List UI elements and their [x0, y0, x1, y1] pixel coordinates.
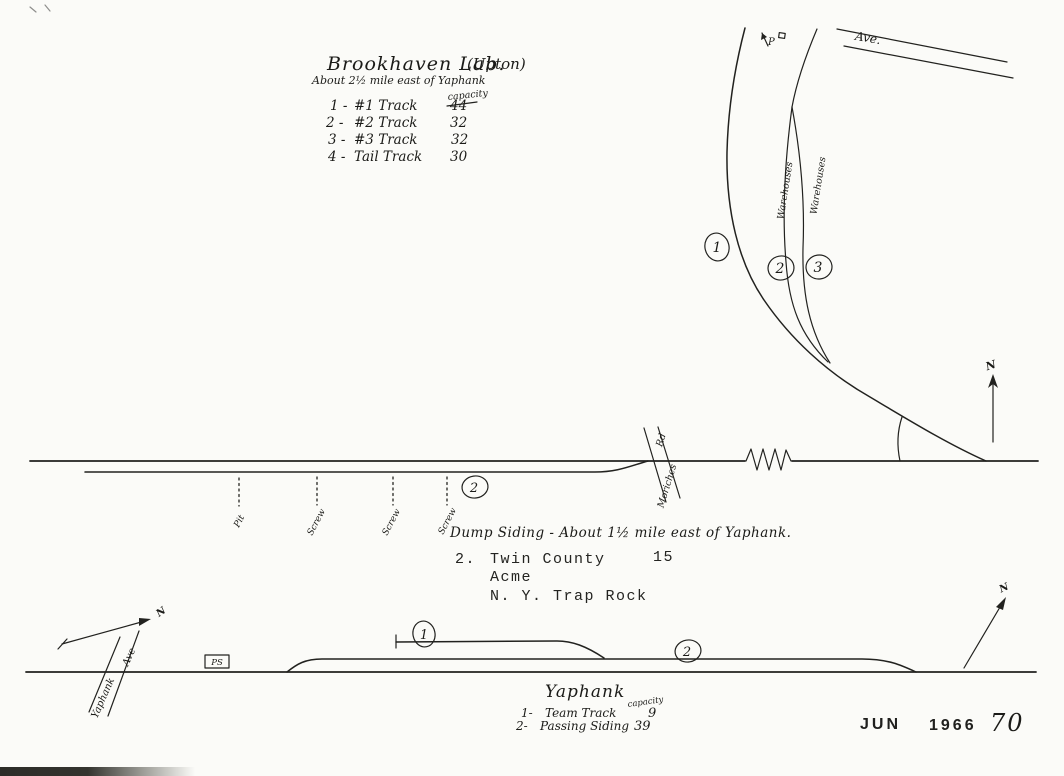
row-capacity: 39 — [634, 719, 651, 734]
north-arrow-br-head — [996, 597, 1006, 610]
brookhaven-track-row-3: 3 - #3 Track 32 — [328, 132, 468, 148]
upton-track-3-warehouse — [792, 107, 830, 363]
yaphank-capacity-header: capacity — [627, 695, 664, 710]
row-name: #1 Track — [354, 98, 417, 114]
row-capacity: 44 — [449, 98, 467, 114]
row-name: Team Track — [545, 706, 616, 720]
north-arrow-bl-head — [139, 618, 151, 626]
row-num: 3 - — [328, 132, 346, 148]
brookhaven-title-suffix: (Upton) — [467, 55, 526, 73]
yaphank-badge-2: 2 — [682, 645, 691, 660]
yaphank-ave-road-name: Yaphank — [90, 676, 118, 720]
row-capacity: 32 — [451, 132, 468, 148]
north-arrow-bl-shaft — [62, 621, 145, 644]
typed-note-company-1: Twin County — [490, 551, 606, 568]
warehouses-label-2: Warehouses — [809, 156, 829, 215]
dump-siding-badge: 2 — [469, 481, 478, 496]
yaphank-title: Yaphank — [545, 682, 625, 702]
moriches-road-suffix: Rd — [654, 432, 669, 449]
typed-note-index: 2. — [455, 551, 476, 568]
yaphank-ave-road-line-2 — [108, 631, 139, 716]
page-number: 70 — [990, 709, 1025, 737]
station-box-label: PS — [210, 658, 223, 668]
north-arrow-br-label: N — [997, 581, 1012, 596]
dump-siding-track — [85, 461, 648, 472]
upton-warehouse-lead-curve — [792, 29, 817, 107]
row-name: Passing Siding — [539, 719, 629, 733]
track-map-canvas: Ave. P Warehouses Warehouses 1 2 3 N Rd … — [0, 0, 1064, 776]
typed-note-company-2: Acme — [490, 569, 532, 586]
brookhaven-subtitle: About 2½ mile east of Yaphank — [311, 74, 486, 87]
row-num: 2- — [515, 719, 528, 733]
spot-label-screw-2: Screw — [381, 507, 403, 537]
brookhaven-track-row-1: 1 - #1 Track 44 — [330, 98, 477, 114]
yaphank-ave-road-suffix: Ave — [120, 646, 138, 668]
brookhaven-track-row-2: 2 - #2 Track 32 — [325, 115, 467, 131]
row-num: 1- — [521, 706, 533, 720]
upton-badge-3: 3 — [814, 260, 823, 276]
row-num: 2 - — [325, 115, 344, 131]
upton-wye-leg — [898, 417, 902, 461]
row-num: 1 - — [330, 98, 348, 114]
pole-marker-arrowhead — [761, 33, 767, 40]
ave-road-label: Ave. — [853, 29, 882, 47]
warehouses-label-1: Warehouses — [776, 161, 796, 220]
row-name: Tail Track — [354, 149, 422, 165]
typed-note-company-3: N. Y. Trap Rock — [490, 588, 648, 605]
brookhaven-track-row-4: 4 - Tail Track 30 — [327, 149, 468, 165]
north-arrow-bl-label: N — [154, 605, 169, 620]
pole-marker-square — [779, 33, 786, 39]
upton-badge-1: 1 — [713, 240, 722, 256]
upton-track-2-warehouse — [784, 107, 828, 362]
row-name: #2 Track — [354, 115, 417, 131]
typed-note-capacity: 15 — [653, 549, 674, 566]
scan-edge-artifact — [0, 767, 195, 776]
ave-road-line-2 — [844, 46, 1013, 78]
scan-speck-marks — [30, 5, 50, 12]
upton-badge-2: 2 — [775, 261, 785, 277]
yaphank-passing-siding — [287, 659, 916, 672]
bridge-zigzag-symbol — [746, 449, 791, 470]
moriches-road-name: Moriches — [655, 463, 679, 510]
row-num: 4 - — [327, 149, 346, 165]
row-capacity: 32 — [450, 115, 467, 131]
pole-marker-label: P — [767, 37, 775, 48]
row-capacity: 30 — [450, 149, 468, 165]
dump-siding-caption: Dump Siding - About 1½ mile east of Yaph… — [449, 525, 791, 541]
north-arrow-mid-label: N — [983, 357, 998, 373]
yaphank-team-track — [396, 641, 604, 658]
spot-label-pit: Pit — [232, 513, 247, 530]
stamp-year: 1966 — [929, 717, 977, 734]
north-arrow-br-shaft — [964, 602, 1003, 668]
yaphank-track-row-2: 2- Passing Siding 39 — [515, 719, 651, 734]
upton-track-1-curve — [727, 28, 986, 461]
yaphank-badge-1: 1 — [420, 628, 428, 643]
spot-label-screw-1: Screw — [306, 507, 328, 537]
north-arrow-bl-feather — [58, 639, 67, 649]
row-name: #3 Track — [354, 132, 417, 148]
track-diagram: Ave. P Warehouses Warehouses 1 2 3 N Rd … — [0, 0, 1064, 776]
stamp-month: JUN — [860, 716, 901, 733]
